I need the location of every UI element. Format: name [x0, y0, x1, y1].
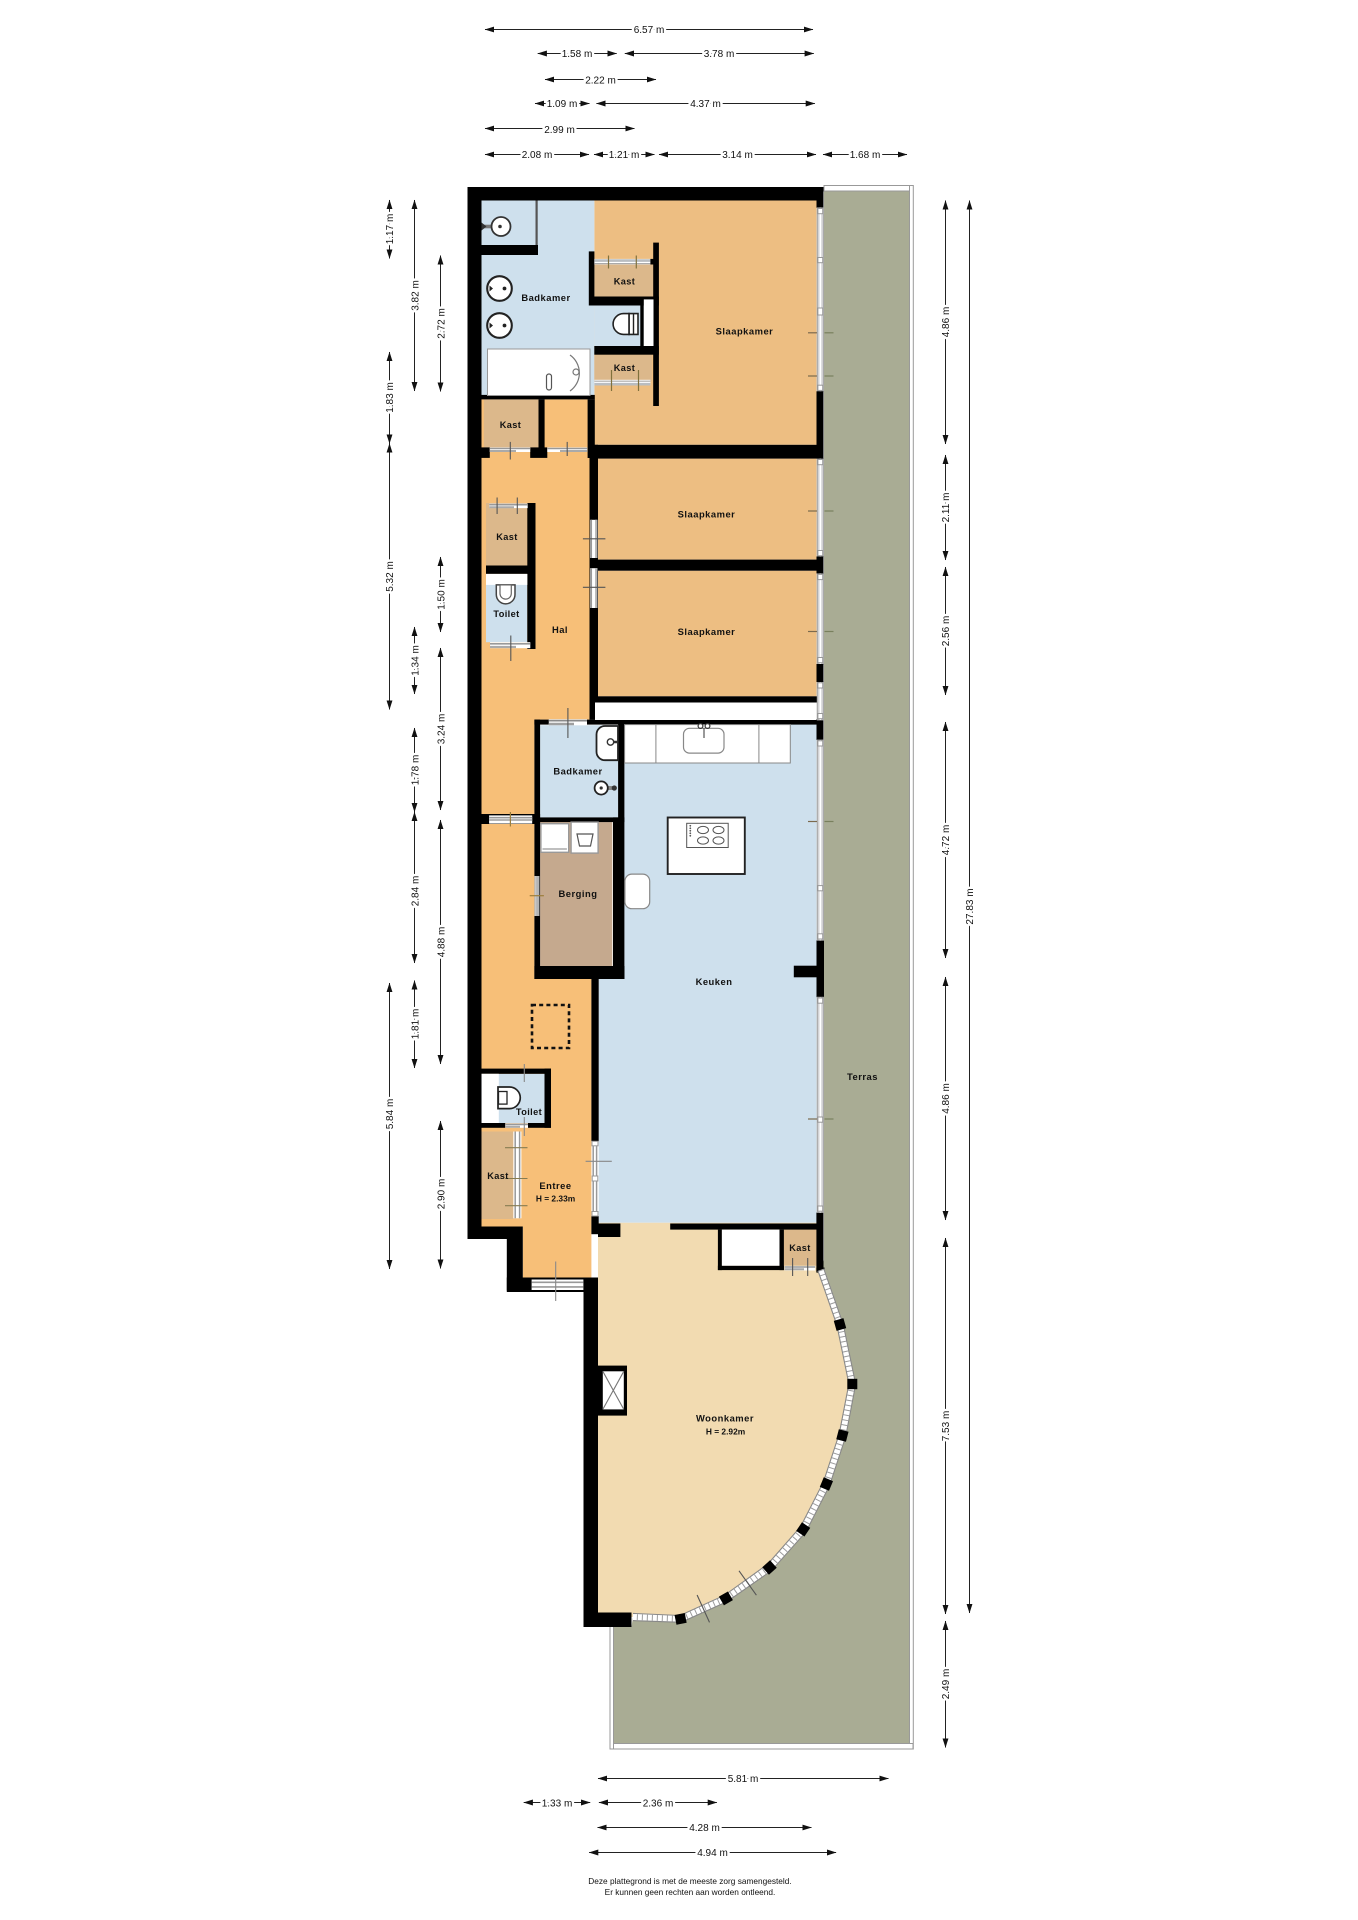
svg-text:6.57 m: 6.57 m: [634, 25, 665, 36]
svg-text:2.08 m: 2.08 m: [522, 150, 553, 161]
svg-text:1.17 m: 1.17 m: [385, 214, 396, 245]
svg-text:5.32 m: 5.32 m: [385, 561, 396, 592]
svg-text:1.78 m: 1.78 m: [411, 755, 422, 786]
svg-text:4.88 m: 4.88 m: [437, 927, 448, 958]
svg-text:5.84 m: 5.84 m: [385, 1099, 396, 1130]
svg-text:Kast: Kast: [614, 363, 636, 373]
svg-text:1.33 m: 1.33 m: [542, 1799, 573, 1810]
svg-text:Slaapkamer: Slaapkamer: [678, 509, 736, 520]
svg-text:H = 2.92m: H = 2.92m: [706, 1427, 745, 1437]
svg-text:2.11 m: 2.11 m: [941, 493, 952, 523]
svg-text:3.78 m: 3.78 m: [704, 49, 735, 60]
svg-text:2.49 m: 2.49 m: [941, 1669, 952, 1700]
svg-text:2.22 m: 2.22 m: [585, 76, 616, 87]
svg-text:Toilet: Toilet: [516, 1107, 542, 1117]
svg-text:5.81 m: 5.81 m: [728, 1774, 759, 1785]
svg-text:2.72 m: 2.72 m: [437, 308, 448, 339]
svg-text:Deze plattegrond is met de mee: Deze plattegrond is met de meeste zorg s…: [588, 1876, 791, 1886]
svg-text:1.81 m: 1.81 m: [411, 1009, 422, 1040]
svg-text:2.99 m: 2.99 m: [544, 125, 575, 136]
svg-text:Hal: Hal: [552, 624, 568, 635]
svg-text:Badkamer: Badkamer: [553, 766, 602, 777]
svg-text:2.90 m: 2.90 m: [437, 1179, 448, 1210]
svg-text:1.34 m: 1.34 m: [411, 645, 422, 676]
svg-text:4.72 m: 4.72 m: [941, 825, 952, 856]
svg-text:Kast: Kast: [500, 420, 522, 430]
svg-text:Slaapkamer: Slaapkamer: [716, 326, 774, 337]
svg-text:Badkamer: Badkamer: [521, 292, 570, 303]
svg-text:1.50 m: 1.50 m: [437, 579, 448, 610]
svg-text:4.86 m: 4.86 m: [941, 307, 952, 338]
svg-text:Slaapkamer: Slaapkamer: [678, 626, 736, 637]
svg-text:Woonkamer: Woonkamer: [696, 1413, 754, 1424]
svg-text:Berging: Berging: [559, 888, 598, 899]
svg-text:3.24 m: 3.24 m: [437, 714, 448, 745]
svg-text:3.82 m: 3.82 m: [411, 280, 422, 311]
svg-text:1.21 m: 1.21 m: [609, 150, 640, 161]
svg-text:Toilet: Toilet: [493, 609, 519, 619]
svg-text:2.36 m: 2.36 m: [643, 1799, 674, 1810]
svg-text:Terras: Terras: [847, 1071, 878, 1082]
svg-text:2.84 m: 2.84 m: [411, 876, 422, 907]
svg-text:4.94 m: 4.94 m: [697, 1848, 728, 1859]
svg-text:1.68 m: 1.68 m: [850, 150, 881, 161]
svg-text:2.56 m: 2.56 m: [941, 616, 952, 647]
svg-text:4.86 m: 4.86 m: [941, 1083, 952, 1114]
svg-text:27.83 m: 27.83 m: [965, 888, 976, 924]
svg-text:4.28 m: 4.28 m: [689, 1823, 720, 1834]
svg-text:Er kunnen geen rechten aan wor: Er kunnen geen rechten aan worden ontlee…: [605, 1887, 776, 1897]
svg-text:3.14 m: 3.14 m: [722, 150, 753, 161]
svg-text:H = 2.33m: H = 2.33m: [536, 1194, 575, 1204]
svg-text:Kast: Kast: [789, 1243, 811, 1253]
svg-text:1.58 m: 1.58 m: [562, 49, 593, 60]
svg-text:Kast: Kast: [496, 532, 518, 542]
svg-text:7.53 m: 7.53 m: [941, 1411, 952, 1442]
svg-text:1.83 m: 1.83 m: [385, 382, 396, 413]
svg-text:4.37 m: 4.37 m: [690, 99, 721, 110]
svg-text:Keuken: Keuken: [696, 976, 733, 987]
svg-text:Kast: Kast: [487, 1171, 509, 1181]
svg-text:1.09 m: 1.09 m: [547, 99, 578, 110]
svg-text:Kast: Kast: [614, 277, 636, 287]
svg-text:Entree: Entree: [539, 1180, 571, 1191]
